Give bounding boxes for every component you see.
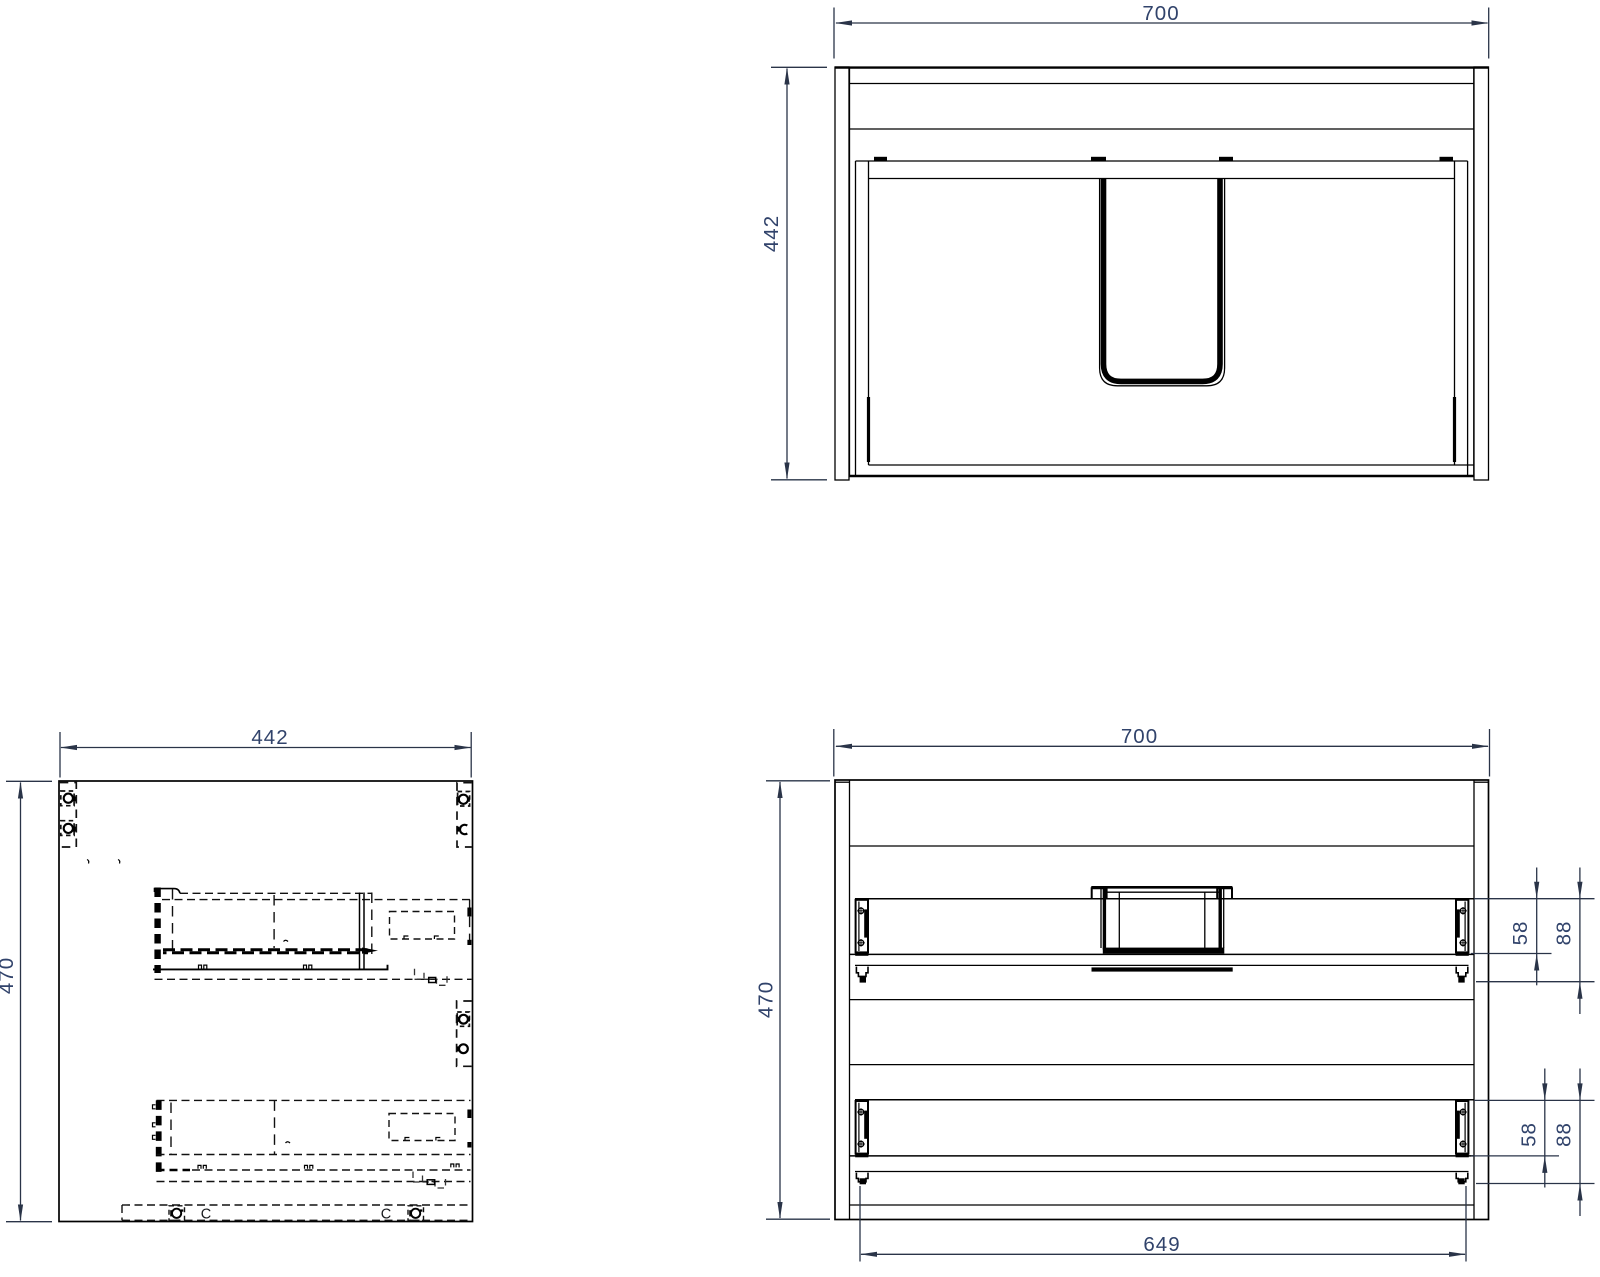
svg-text:88: 88 — [1553, 921, 1576, 946]
svg-text:58: 58 — [1518, 1122, 1541, 1147]
svg-text:700: 700 — [1121, 725, 1158, 748]
svg-text:58: 58 — [1509, 921, 1532, 946]
svg-text:88: 88 — [1553, 1122, 1576, 1147]
svg-text:C: C — [381, 1207, 391, 1223]
svg-text:442: 442 — [251, 726, 288, 749]
svg-text:470: 470 — [0, 957, 18, 994]
svg-text:C: C — [201, 1207, 211, 1223]
svg-text:470: 470 — [755, 981, 778, 1018]
svg-text:442: 442 — [760, 215, 783, 252]
svg-text:700: 700 — [1142, 2, 1179, 25]
svg-text:649: 649 — [1143, 1233, 1180, 1256]
